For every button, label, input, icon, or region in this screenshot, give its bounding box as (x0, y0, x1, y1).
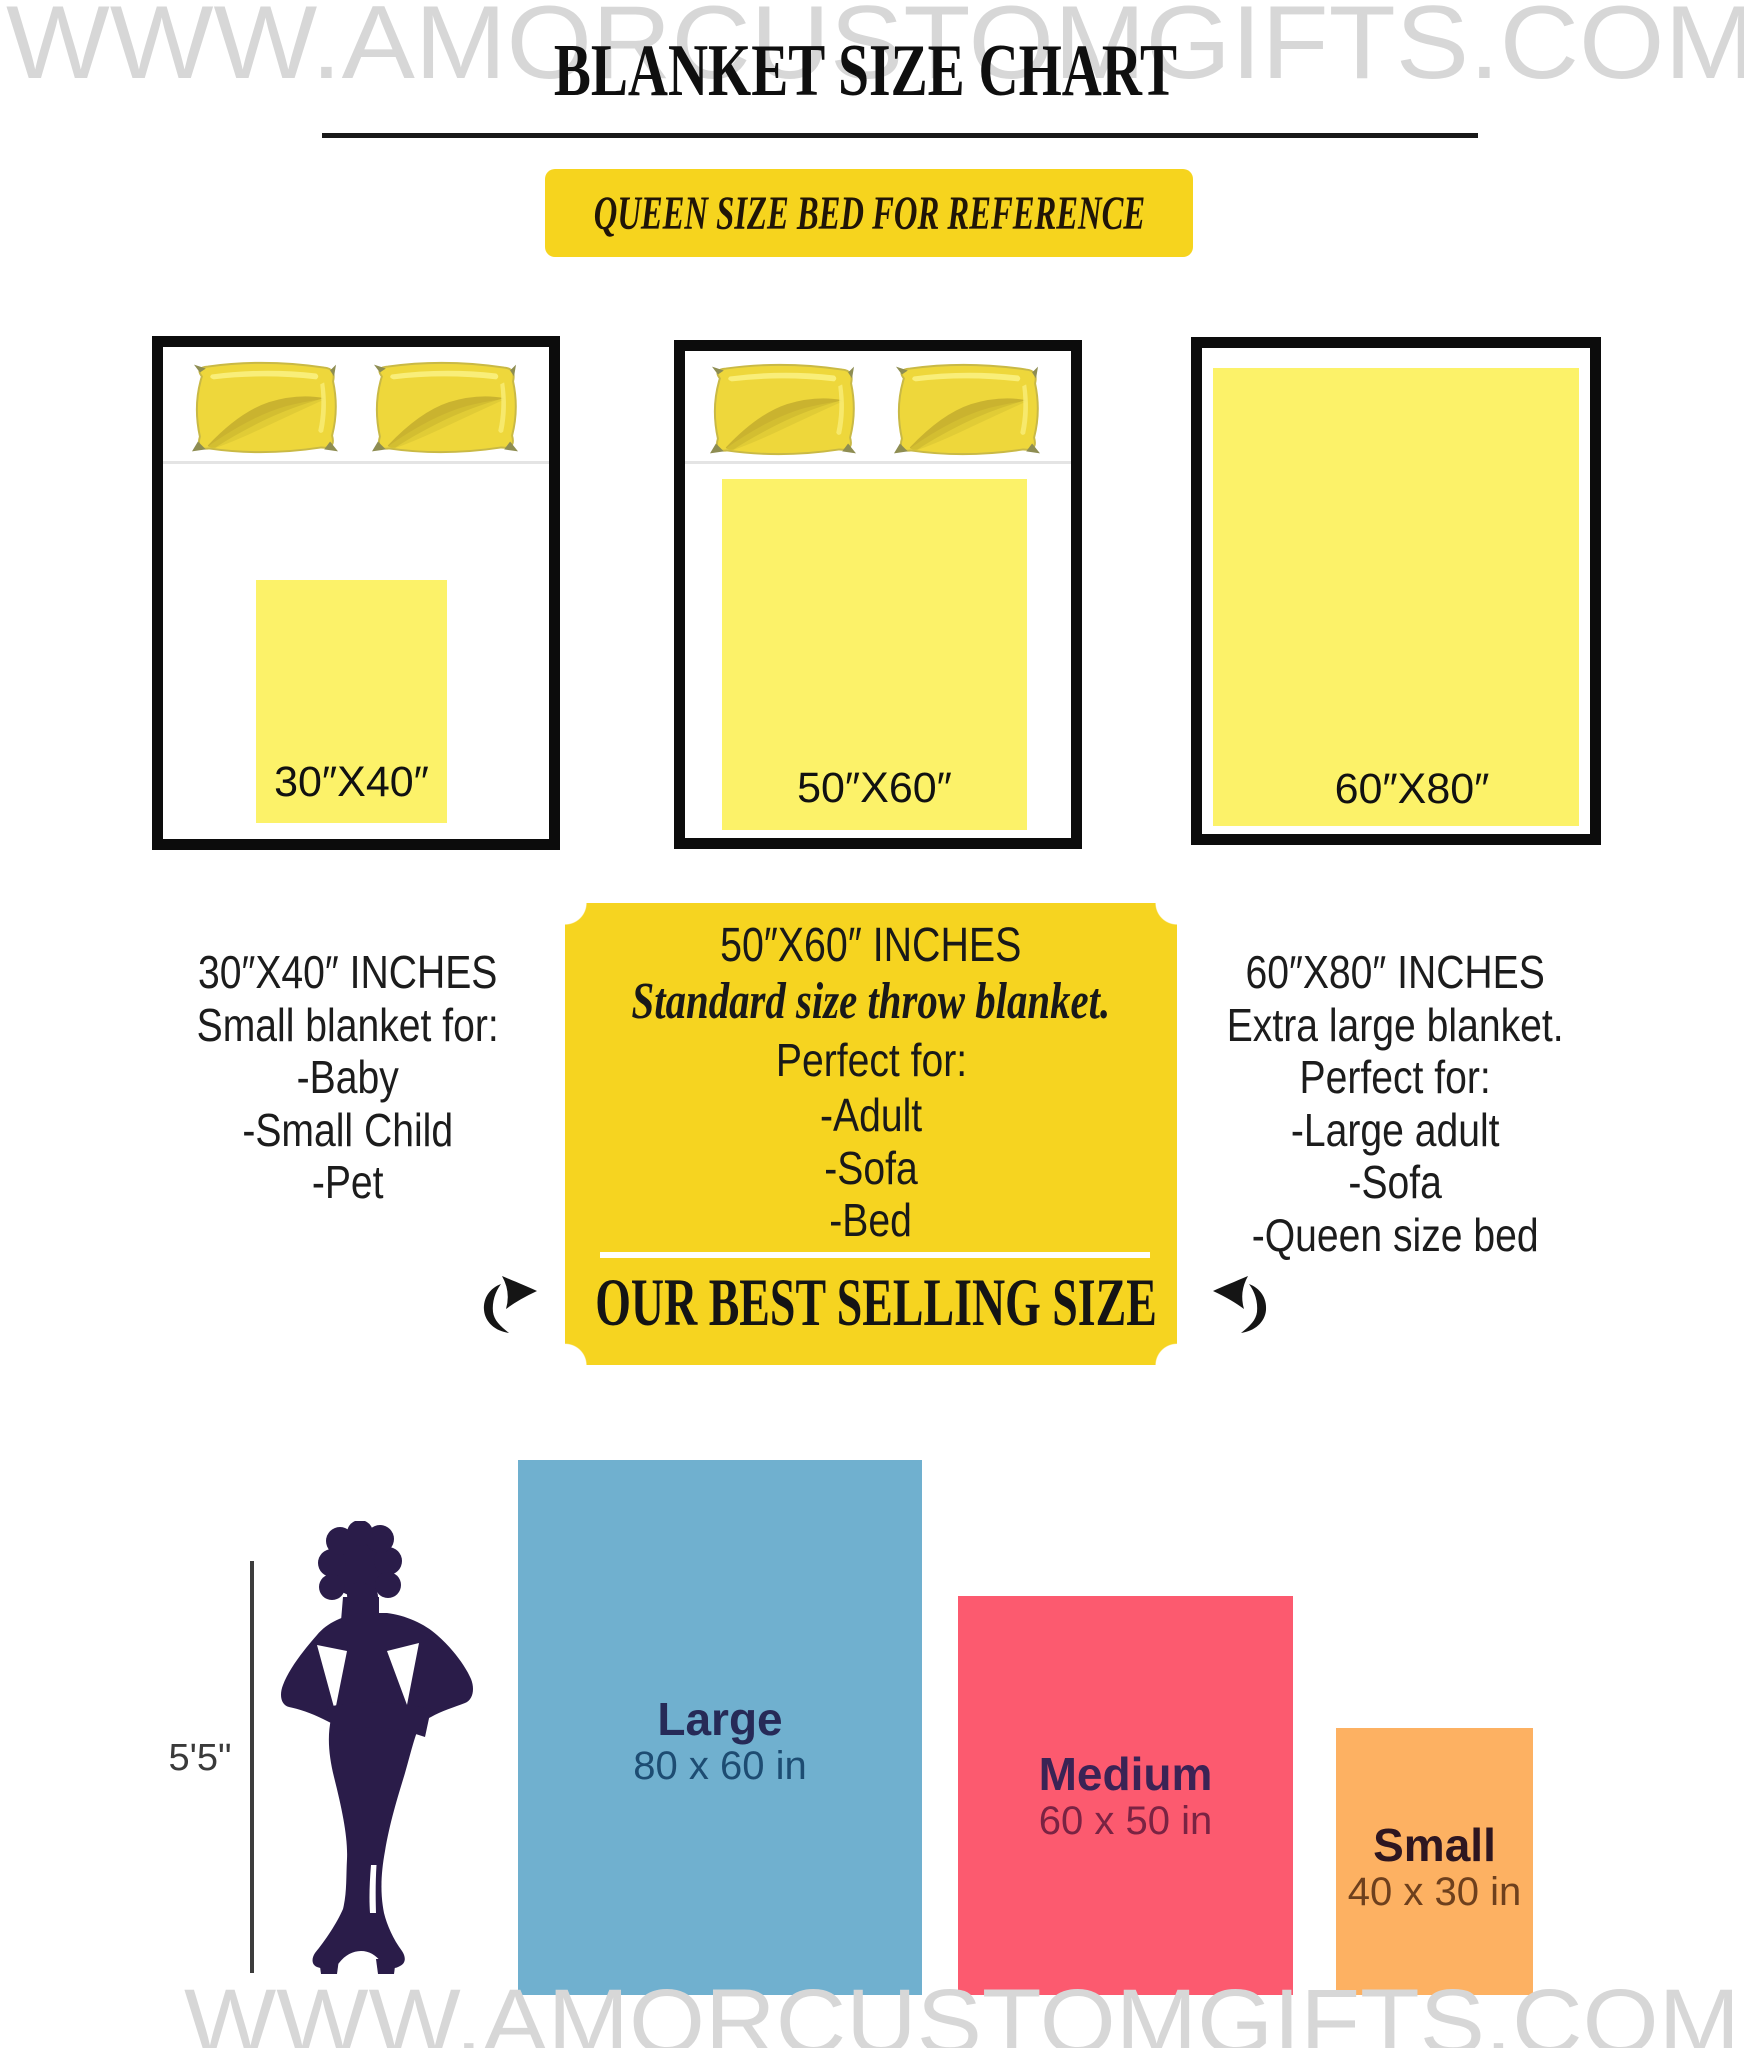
svg-text:WWW.AMORCUSTOMGIFTS.COM: WWW.AMORCUSTOMGIFTS.COM (184, 1971, 1740, 2048)
